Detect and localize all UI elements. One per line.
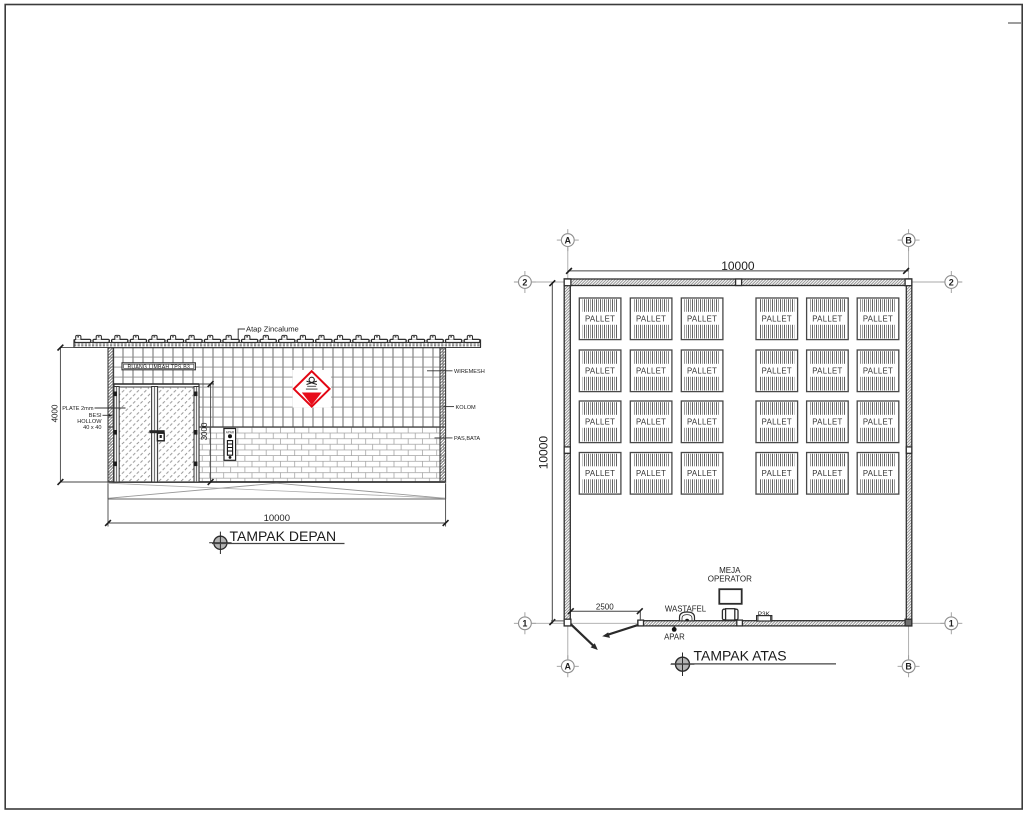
svg-text:MEJA: MEJA	[719, 566, 741, 575]
svg-text:PAS,BATA: PAS,BATA	[454, 436, 480, 442]
svg-text:PALLET: PALLET	[636, 314, 666, 323]
svg-text:A: A	[565, 662, 572, 672]
svg-text:PALLET: PALLET	[812, 366, 842, 375]
svg-text:1: 1	[522, 619, 527, 629]
svg-text:PLATE 2mm: PLATE 2mm	[62, 406, 94, 412]
svg-text:PALLET: PALLET	[687, 314, 717, 323]
svg-text:APAR: APAR	[664, 632, 685, 641]
svg-text:PALLET: PALLET	[636, 366, 666, 375]
svg-text:2500: 2500	[596, 602, 614, 611]
svg-text:TAMPAK ATAS: TAMPAK ATAS	[694, 648, 787, 664]
svg-text:OPERATOR: OPERATOR	[708, 575, 752, 584]
svg-text:PALLET: PALLET	[585, 469, 615, 478]
svg-text:TAMPAK DEPAN: TAMPAK DEPAN	[230, 528, 337, 544]
svg-text:PALLET: PALLET	[585, 314, 615, 323]
svg-text:APAR: APAR	[226, 430, 235, 434]
svg-text:10000: 10000	[721, 259, 755, 273]
svg-text:B: B	[905, 662, 912, 672]
svg-text:Atap Zincalume: Atap Zincalume	[246, 325, 299, 334]
svg-text:PALLET: PALLET	[863, 469, 893, 478]
svg-text:2: 2	[949, 277, 954, 287]
svg-text:4000: 4000	[51, 404, 60, 422]
svg-text:10000: 10000	[264, 513, 290, 524]
svg-text:RUANG LIMBAH TPS B3: RUANG LIMBAH TPS B3	[127, 364, 190, 370]
svg-text:10000: 10000	[537, 436, 551, 470]
svg-text:KOLOM: KOLOM	[456, 405, 477, 411]
svg-text:PALLET: PALLET	[585, 366, 615, 375]
svg-text:PALLET: PALLET	[863, 417, 893, 426]
svg-text:PALLET: PALLET	[687, 366, 717, 375]
svg-text:PALLET: PALLET	[863, 366, 893, 375]
svg-text:PALLET: PALLET	[687, 417, 717, 426]
svg-text:40 x 40: 40 x 40	[83, 425, 101, 431]
svg-text:PALLET: PALLET	[762, 417, 792, 426]
svg-text:3000: 3000	[200, 422, 209, 440]
svg-text:PALLET: PALLET	[762, 469, 792, 478]
svg-text:PALLET: PALLET	[863, 314, 893, 323]
svg-text:B: B	[905, 235, 912, 245]
svg-text:PALLET: PALLET	[812, 314, 842, 323]
svg-text:2: 2	[522, 277, 527, 287]
svg-text:PALLET: PALLET	[636, 469, 666, 478]
svg-text:WIREMESH: WIREMESH	[454, 369, 485, 375]
svg-text:PALLET: PALLET	[636, 417, 666, 426]
svg-text:PALLET: PALLET	[812, 417, 842, 426]
svg-text:PALLET: PALLET	[687, 469, 717, 478]
svg-text:PALLET: PALLET	[585, 417, 615, 426]
svg-text:A: A	[565, 235, 572, 245]
svg-text:PALLET: PALLET	[762, 314, 792, 323]
svg-text:1: 1	[949, 619, 954, 629]
svg-text:PALLET: PALLET	[812, 469, 842, 478]
svg-text:PALLET: PALLET	[762, 366, 792, 375]
